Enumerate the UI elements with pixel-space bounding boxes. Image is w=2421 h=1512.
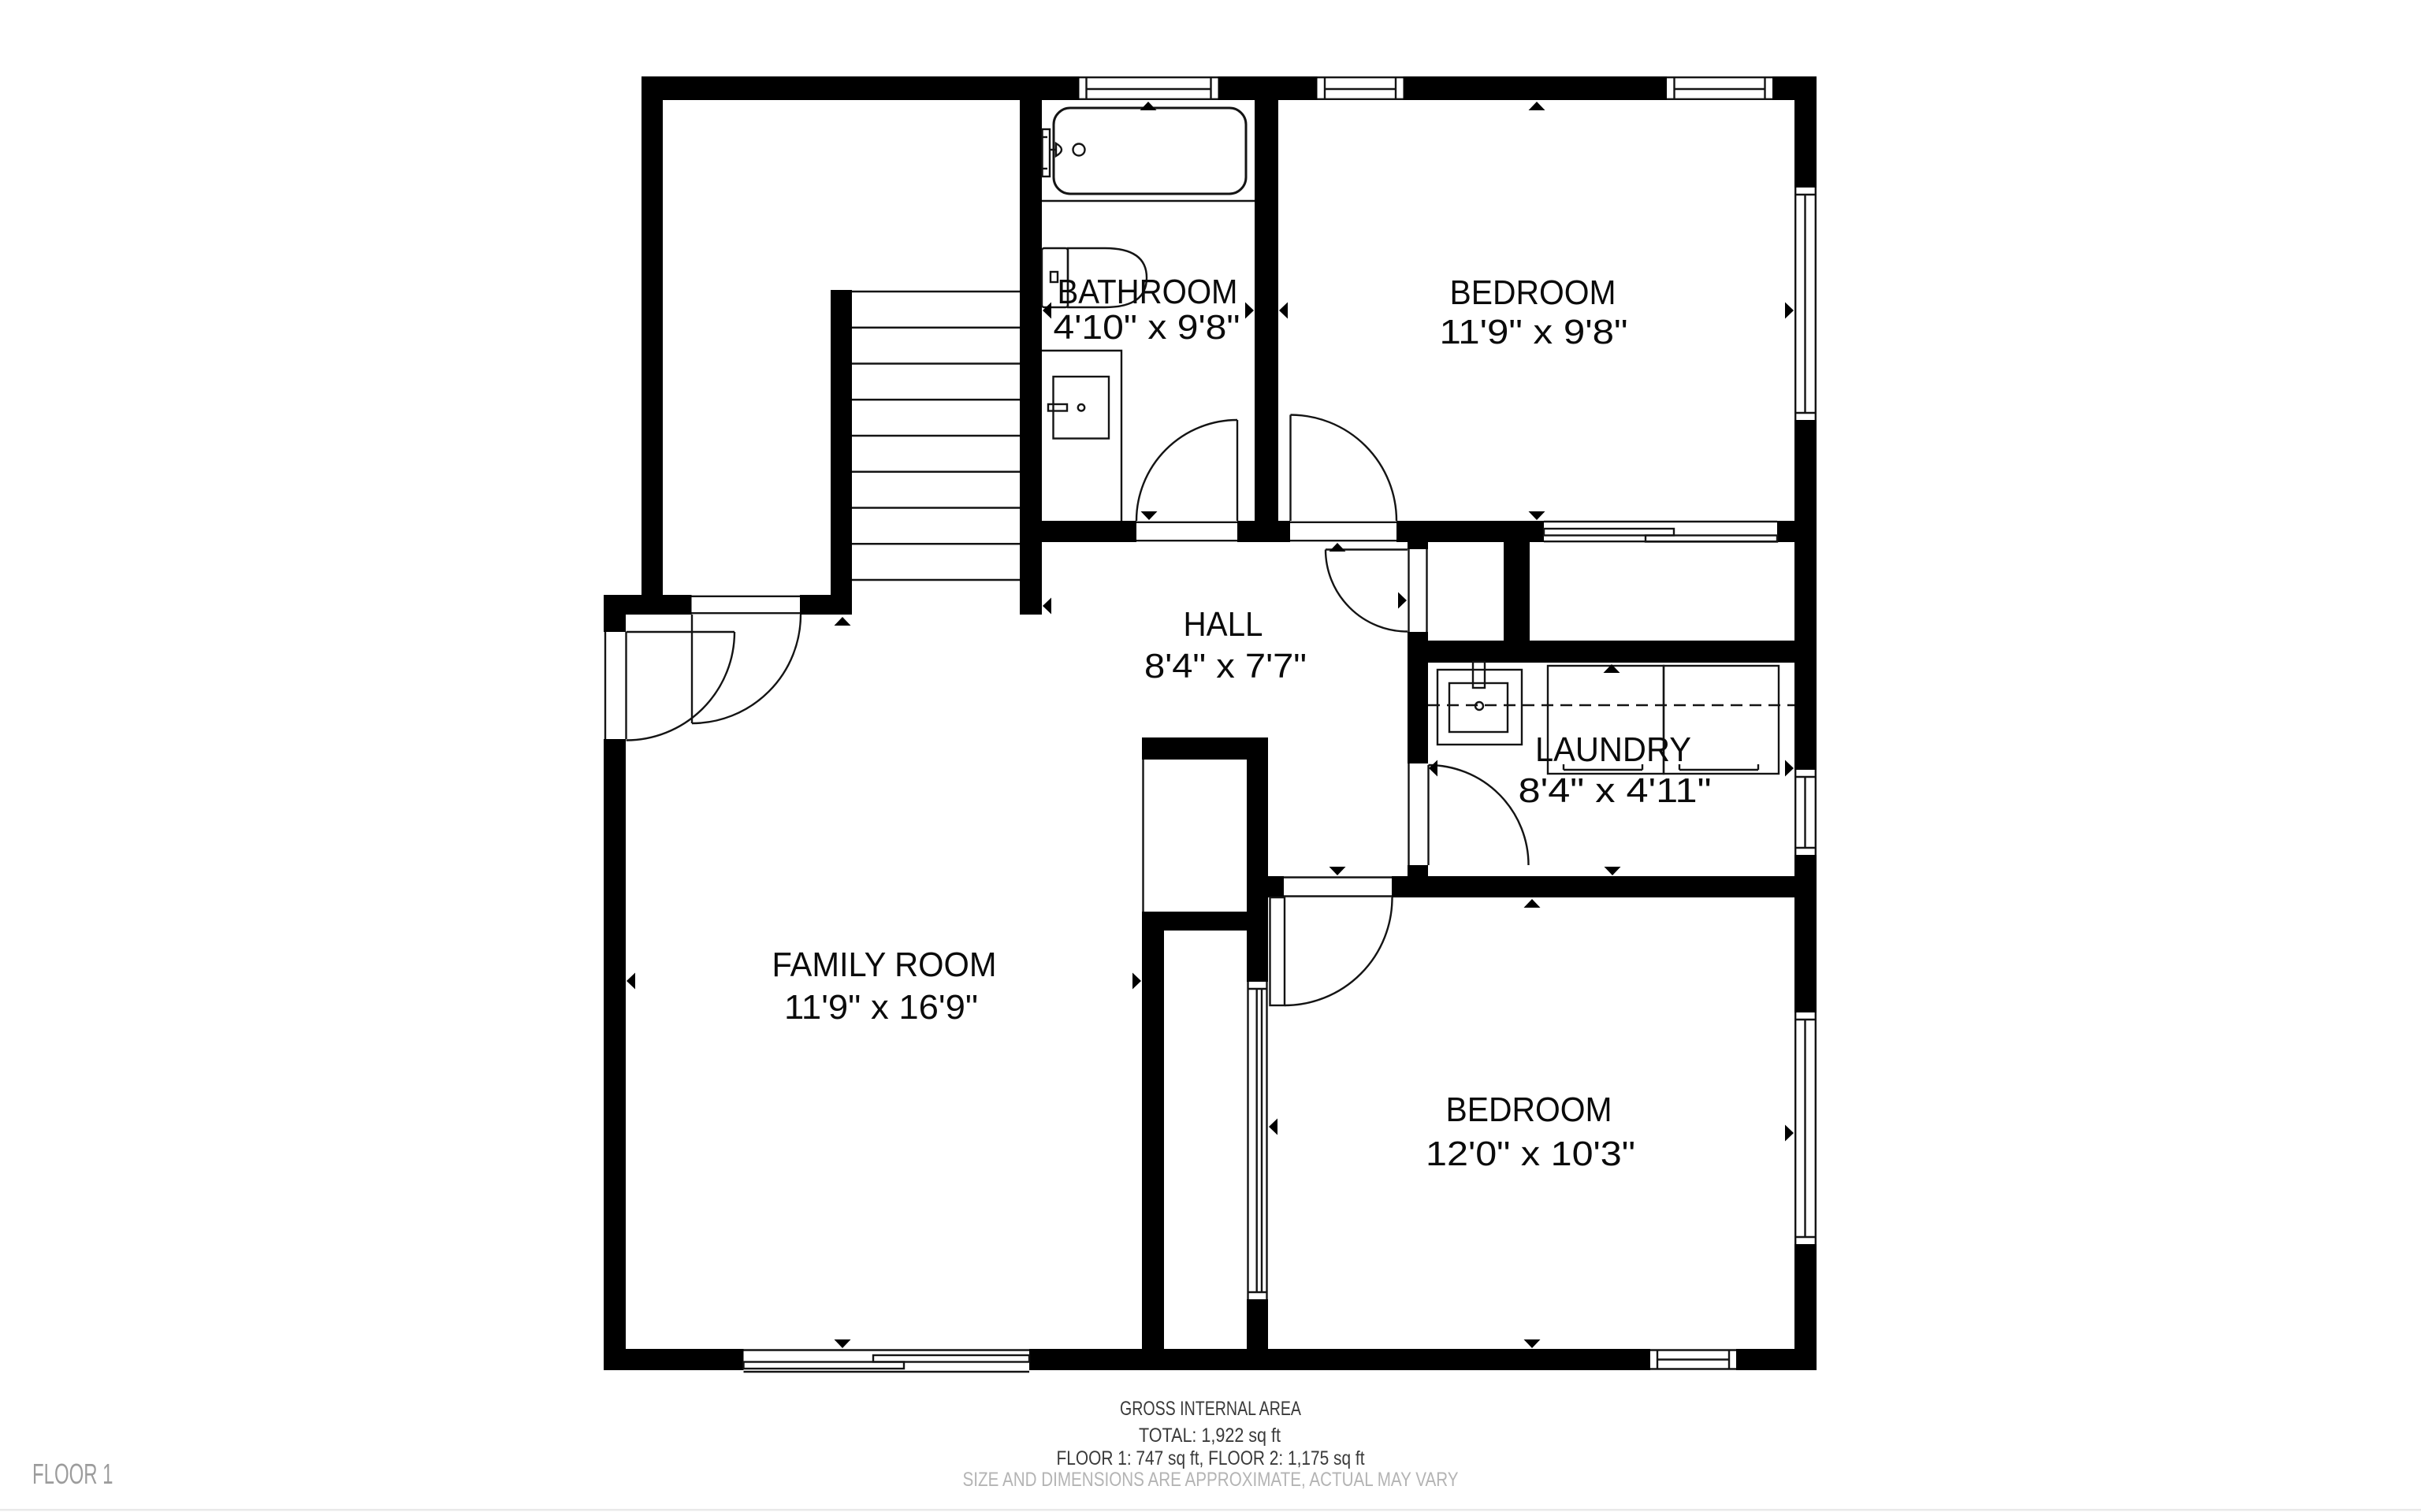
svg-text:TOTAL: 1,922 sq ft: TOTAL: 1,922 sq ft [1139,1425,1281,1447]
svg-text:11'9" x 9'8": 11'9" x 9'8" [1440,313,1628,351]
svg-text:4'10" x 9'8": 4'10" x 9'8" [1054,308,1240,347]
svg-text:FLOOR 1: FLOOR 1 [32,1458,113,1490]
svg-text:8'4" x 4'11": 8'4" x 4'11" [1519,771,1712,810]
svg-text:SIZE AND DIMENSIONS ARE APPROX: SIZE AND DIMENSIONS ARE APPROXIMATE, ACT… [963,1469,1459,1491]
svg-text:HALL: HALL [1184,605,1263,644]
svg-text:LAUNDRY: LAUNDRY [1535,730,1691,769]
svg-text:FLOOR 1: 747 sq ft, FLOOR 2: 1: FLOOR 1: 747 sq ft, FLOOR 2: 1,175 sq ft [1057,1447,1365,1469]
svg-text:BEDROOM: BEDROOM [1450,273,1616,312]
svg-text:12'0" x 10'3": 12'0" x 10'3" [1426,1135,1635,1173]
svg-text:8'4" x 7'7": 8'4" x 7'7" [1144,647,1307,685]
svg-text:BEDROOM: BEDROOM [1446,1090,1612,1129]
svg-text:FAMILY ROOM: FAMILY ROOM [772,945,997,984]
svg-text:BATHROOM: BATHROOM [1058,273,1238,311]
svg-text:11'9" x 16'9": 11'9" x 16'9" [784,988,978,1027]
svg-text:GROSS INTERNAL AREA: GROSS INTERNAL AREA [1120,1398,1301,1420]
